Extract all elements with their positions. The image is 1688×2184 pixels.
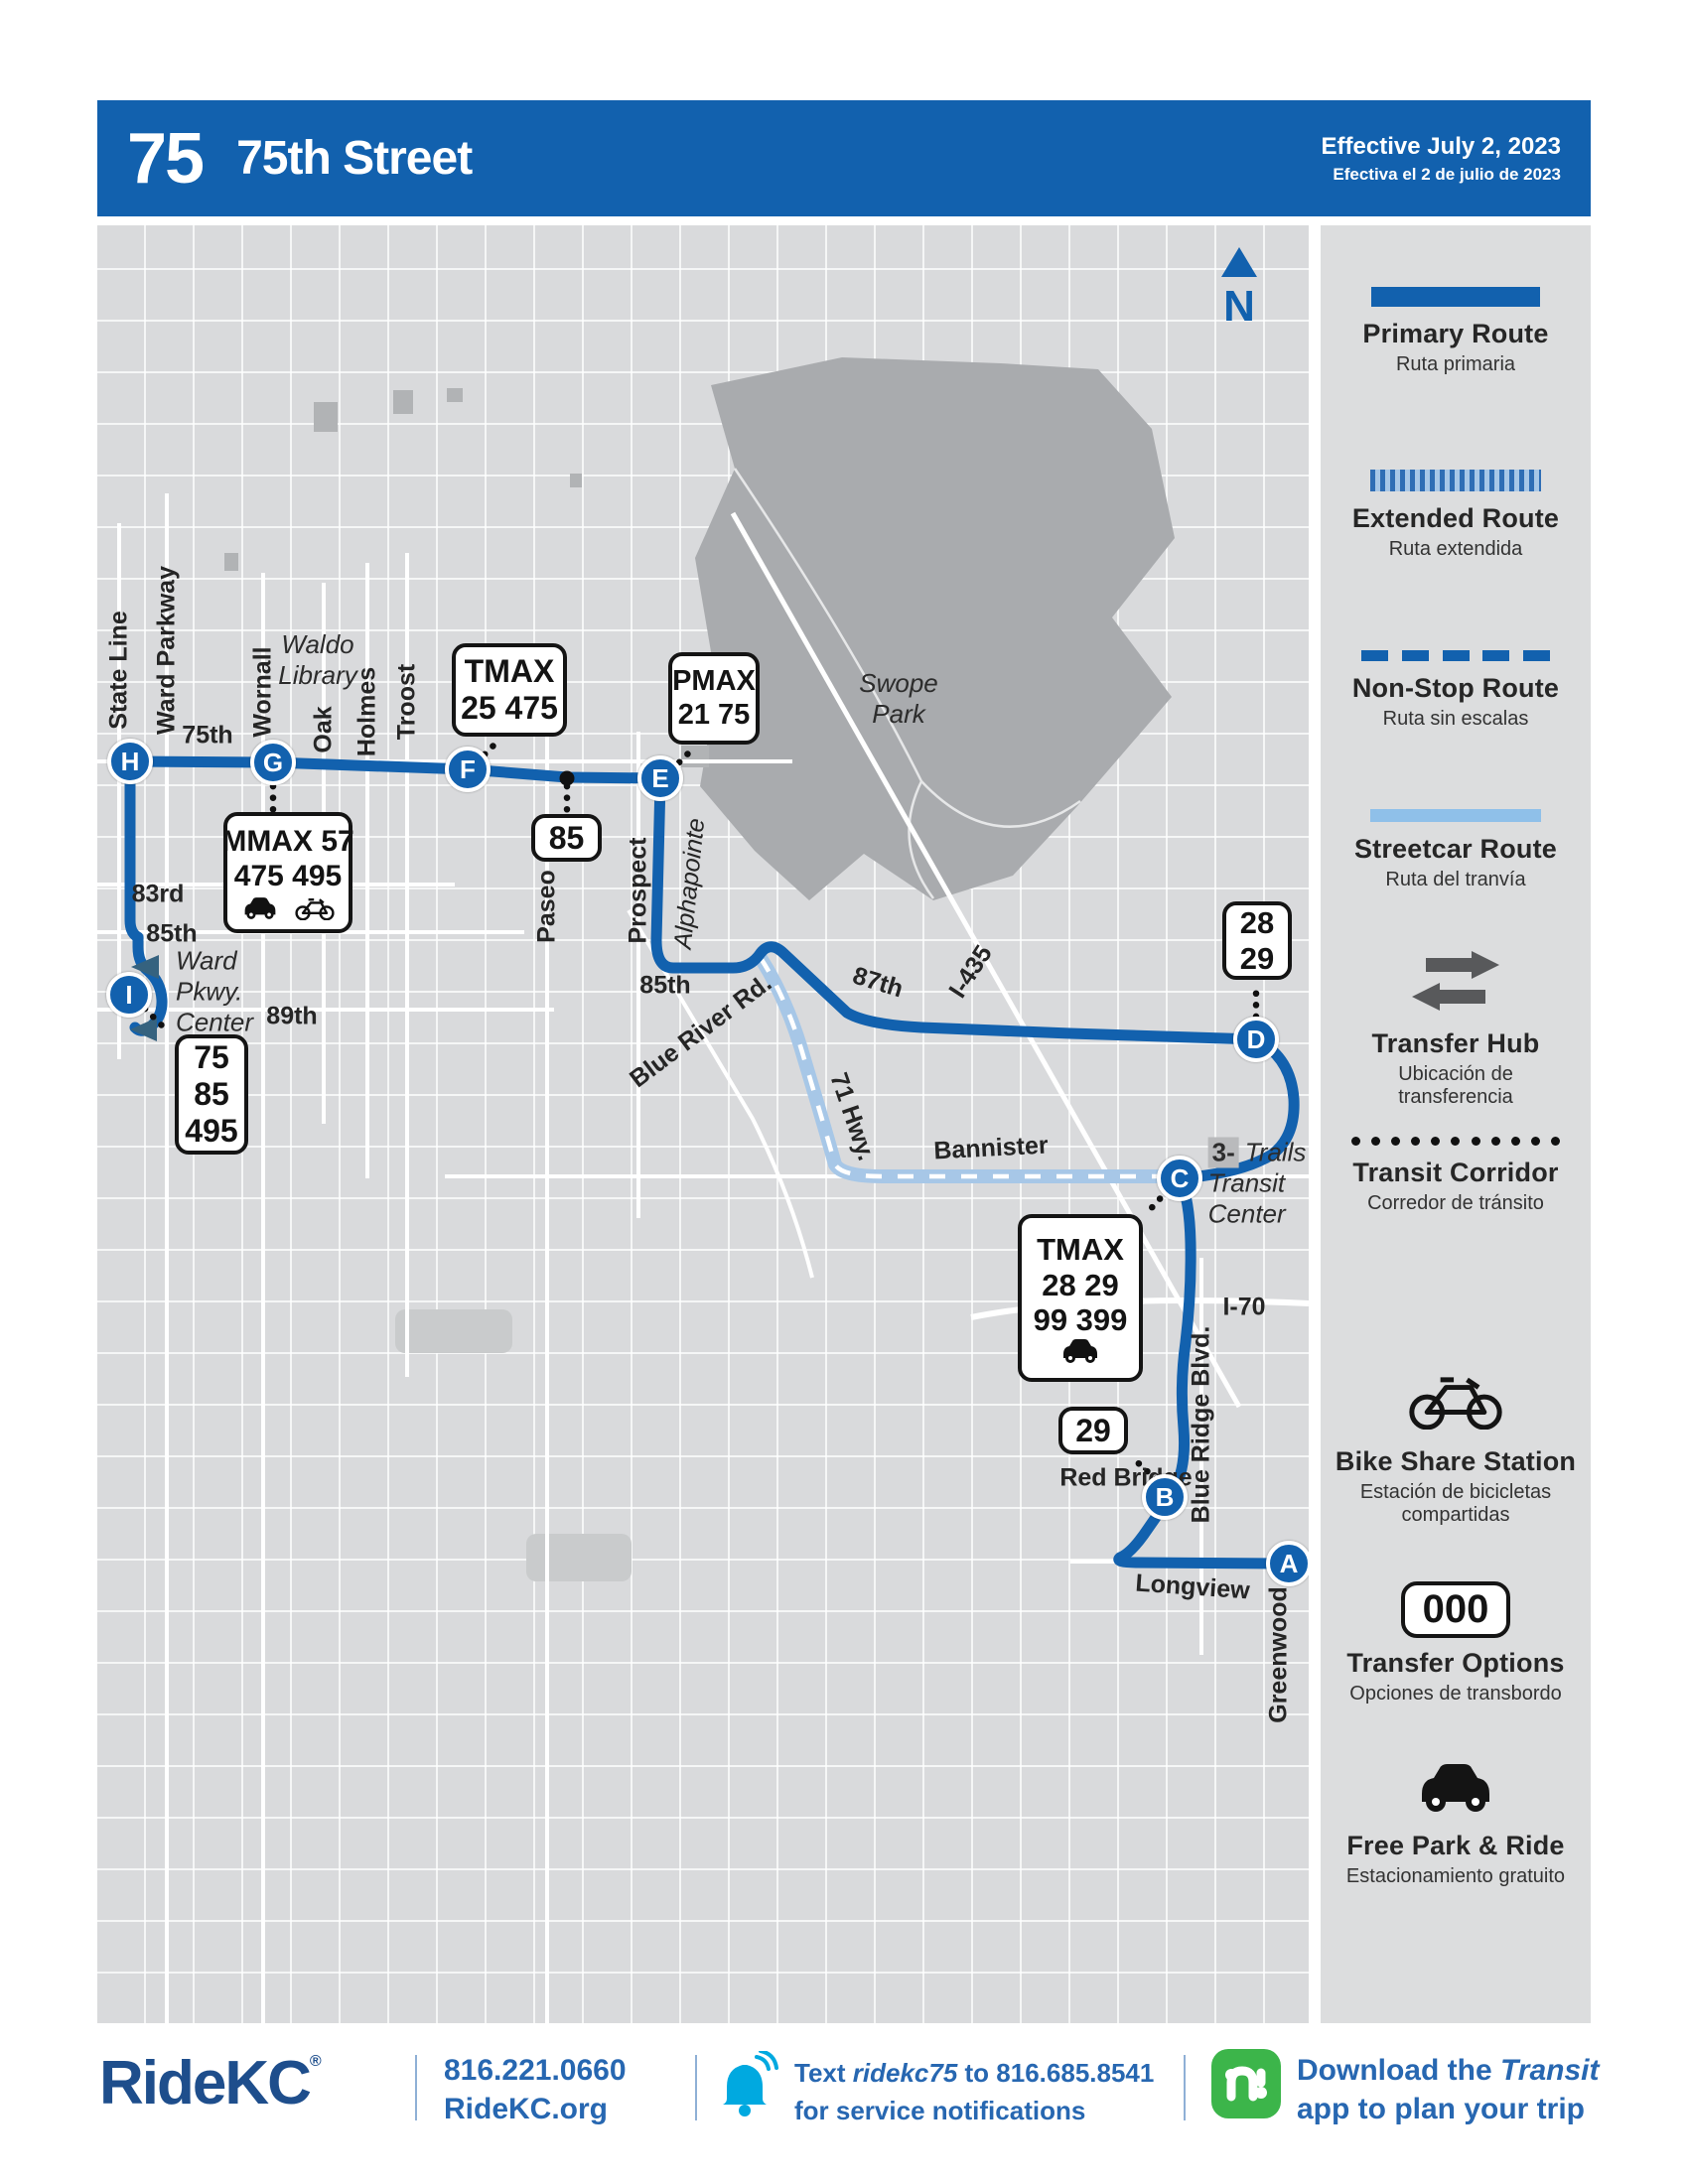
street-label-greenwood: Greenwood bbox=[1265, 1586, 1294, 1723]
place-label-swope-park: Swope Park bbox=[859, 668, 938, 730]
legend-panel: Primary Route Ruta primaria Extended Rou… bbox=[1321, 225, 1591, 2023]
transfer-options-badge: 000 bbox=[1401, 1581, 1511, 1638]
street-label-85th-east: 85th bbox=[639, 972, 690, 1001]
callout-tmax-south: TMAX 28 29 99 399 bbox=[1018, 1214, 1143, 1382]
place-label-waldo-library: Waldo Library bbox=[278, 629, 356, 691]
nonstop-route-swatch bbox=[1361, 650, 1550, 661]
route-name: 75th Street bbox=[236, 131, 472, 186]
street-label-wornall: Wornall bbox=[249, 646, 278, 737]
extended-route-swatch bbox=[1370, 470, 1541, 491]
callout-85: 85 bbox=[531, 814, 602, 862]
legend-transfer-hub: Transfer Hub Ubicación de transferencia bbox=[1321, 950, 1591, 1109]
sms-notifications-block: Text ridekc75 to 816.685.8541 for servic… bbox=[794, 2055, 1154, 2129]
stop-g: G bbox=[250, 740, 296, 785]
route-map: N State Line Ward Parkway Wornall Oak Ho… bbox=[97, 225, 1309, 2023]
stop-a: A bbox=[1266, 1541, 1309, 1586]
street-label-oak: Oak bbox=[310, 706, 339, 752]
transit-app-name: Transit bbox=[1500, 2054, 1599, 2087]
effective-date-es: Efectiva el 2 de julio de 2023 bbox=[1322, 165, 1561, 185]
callout-29: 29 bbox=[1058, 1407, 1128, 1454]
stop-i: I bbox=[106, 972, 152, 1018]
car-icon bbox=[1414, 1762, 1497, 1814]
street-label-holmes: Holmes bbox=[353, 667, 382, 756]
street-label-troost: Troost bbox=[393, 664, 422, 740]
streetcar-route-swatch bbox=[1370, 809, 1541, 822]
ridekc-logo: RideKC® bbox=[99, 2048, 320, 2118]
legend-transfer-options: 000 Transfer Options Opciones de transbo… bbox=[1321, 1581, 1591, 1706]
stop-d: D bbox=[1233, 1017, 1279, 1062]
header-bar: 75 75th Street Effective July 2, 2023 Ef… bbox=[97, 100, 1591, 216]
stop-e: E bbox=[637, 755, 683, 801]
stop-h: H bbox=[107, 739, 153, 784]
map-base-art bbox=[97, 225, 1309, 2023]
download-app-block: Download the Transit app to plan your tr… bbox=[1297, 2051, 1599, 2128]
phone-number[interactable]: 816.221.0660 bbox=[444, 2051, 627, 2090]
route-number: 75 bbox=[127, 118, 203, 200]
route-junction-dot bbox=[560, 771, 575, 786]
street-label-85th-west: 85th bbox=[146, 920, 197, 949]
legend-extended-route: Extended Route Ruta extendida bbox=[1321, 470, 1591, 561]
contact-block: 816.221.0660 RideKC.org bbox=[444, 2051, 627, 2128]
north-label: N bbox=[1223, 282, 1255, 332]
street-label-prospect: Prospect bbox=[625, 838, 653, 944]
street-label-83rd: 83rd bbox=[132, 881, 185, 909]
place-label-ward-pkwy-center: Ward Pkwy. Center bbox=[176, 946, 253, 1038]
car-icon bbox=[1059, 1338, 1101, 1364]
callout-75-85-495: 75 85 495 bbox=[175, 1034, 248, 1155]
street-label-state-line: State Line bbox=[105, 611, 134, 729]
street-label-ward-parkway: Ward Parkway bbox=[153, 566, 182, 735]
place-label-trails-transit-center: 3-Trails Transit Center bbox=[1208, 1138, 1307, 1230]
stop-f: F bbox=[445, 747, 491, 792]
transfer-arrows-icon bbox=[1410, 950, 1501, 1012]
bike-icon bbox=[1408, 1372, 1503, 1430]
sms-keyword: ridekc75 bbox=[853, 2058, 958, 2088]
street-label-bannister: Bannister bbox=[933, 1132, 1050, 1166]
footer-divider bbox=[1184, 2055, 1186, 2120]
street-label-89th: 89th bbox=[266, 1003, 317, 1031]
footer-divider bbox=[695, 2055, 697, 2120]
website-link[interactable]: RideKC.org bbox=[444, 2090, 627, 2128]
street-label-blue-ridge: Blue Ridge Blvd. bbox=[1188, 1326, 1216, 1524]
car-icon bbox=[241, 896, 279, 920]
swope-park-area bbox=[695, 357, 1175, 900]
effective-dates: Effective July 2, 2023 Efectiva el 2 de … bbox=[1322, 133, 1561, 185]
transit-corridor-swatch bbox=[1351, 1137, 1560, 1146]
street-label-paseo: Paseo bbox=[533, 870, 562, 943]
transit-app-icon[interactable] bbox=[1211, 2049, 1281, 2118]
legend-nonstop-route: Non-Stop Route Ruta sin escalas bbox=[1321, 650, 1591, 731]
street-label-75th: 75th bbox=[182, 722, 232, 751]
bike-icon bbox=[295, 896, 335, 920]
legend-free-park-ride: Free Park & Ride Estacionamiento gratuit… bbox=[1321, 1762, 1591, 1888]
stop-c: C bbox=[1157, 1156, 1202, 1201]
callout-28-29: 28 29 bbox=[1222, 901, 1292, 980]
effective-date-en: Effective July 2, 2023 bbox=[1322, 133, 1561, 161]
street-label-i70: I-70 bbox=[1222, 1294, 1265, 1322]
callout-mmax: MMAX 57 475 495 bbox=[223, 812, 352, 933]
route-3-chip: 3- bbox=[1208, 1138, 1239, 1168]
route-map-page: 75 75th Street Effective July 2, 2023 Ef… bbox=[0, 0, 1688, 2184]
primary-route-swatch bbox=[1371, 287, 1540, 307]
bell-icon bbox=[717, 2051, 778, 2118]
stop-b: B bbox=[1142, 1474, 1188, 1520]
callout-pmax: PMAX 21 75 bbox=[668, 652, 760, 745]
footer-divider bbox=[415, 2055, 417, 2120]
north-arrow-icon bbox=[1221, 247, 1257, 277]
legend-primary-route: Primary Route Ruta primaria bbox=[1321, 287, 1591, 376]
legend-streetcar-route: Streetcar Route Ruta del tranvía bbox=[1321, 809, 1591, 891]
legend-transit-corridor: Transit Corridor Corredor de tránsito bbox=[1321, 1137, 1591, 1215]
callout-tmax-north: TMAX 25 475 bbox=[452, 643, 567, 737]
legend-bike-share: Bike Share Station Estación de bicicleta… bbox=[1321, 1372, 1591, 1527]
sms-number: 816.685.8541 bbox=[996, 2058, 1154, 2088]
